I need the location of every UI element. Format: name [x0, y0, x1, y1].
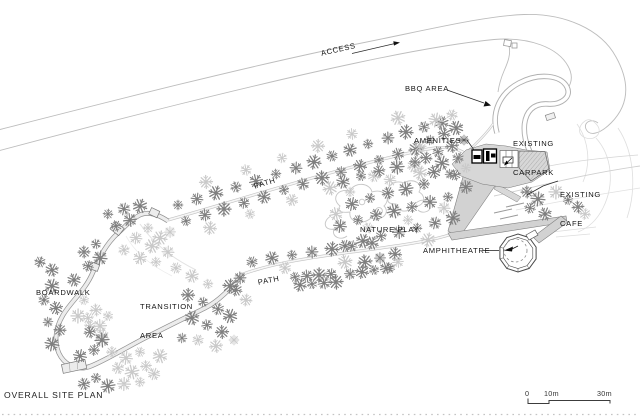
tree-icon — [215, 325, 229, 339]
tree-icon — [162, 224, 177, 239]
tree-icon — [245, 255, 260, 270]
label-existing-carpark-line2: CARPARK — [513, 168, 554, 178]
tree-icon — [169, 261, 184, 276]
tree-icon — [199, 175, 213, 189]
label-bbq-area: BBQ AREA — [405, 84, 449, 94]
label-nature-play: NATURE PLAY — [360, 225, 419, 235]
bbq-leader — [447, 90, 484, 103]
tree-icon — [445, 108, 459, 122]
bbq-arrow-icon — [484, 101, 492, 107]
tree-icon — [311, 139, 325, 153]
label-transition-line1: TRANSITION — [140, 302, 193, 312]
tree-icon — [173, 200, 183, 210]
access-arrow-icon — [393, 41, 400, 45]
tree-icon — [131, 249, 149, 267]
tree-icon — [160, 244, 177, 261]
tree-icon — [521, 186, 533, 198]
tree-icon — [421, 193, 439, 211]
tree-icon — [418, 178, 429, 189]
access-road-outer-line — [0, 14, 626, 133]
label-existing-carpark: EXISTING CARPARK — [513, 120, 554, 187]
tree-icon — [368, 207, 384, 223]
tree-icon — [442, 191, 453, 202]
tree-icon — [207, 184, 225, 202]
tree-icon — [364, 192, 377, 205]
label-boardwalk: BOARDWALK — [36, 288, 91, 298]
tree-icon — [292, 277, 308, 293]
tree-icon — [306, 154, 323, 171]
label-existing-cafe-line2: CAFE — [560, 219, 601, 229]
tree-icon — [387, 157, 407, 177]
label-existing-cafe-line1: EXISTING — [560, 190, 601, 200]
tree-icon — [390, 254, 405, 269]
tree-icon — [398, 124, 414, 140]
tree-icon — [151, 257, 162, 268]
tree-icon — [103, 209, 114, 220]
tree-icon — [345, 187, 355, 197]
tree-icon — [229, 180, 243, 194]
page-title: OVERALL SITE PLAN — [4, 390, 103, 400]
label-amphitheatre: AMPHITHEATRE — [423, 246, 490, 256]
tree-icon — [341, 141, 359, 159]
tree-icon — [89, 303, 102, 316]
label-transition-line2: AREA — [140, 331, 193, 341]
turning-head — [580, 120, 600, 139]
scale-label-start: 0 — [525, 389, 529, 398]
tree-icon — [403, 215, 414, 226]
tree-icon — [54, 324, 67, 337]
tree-icon — [89, 237, 103, 251]
tree-icon — [325, 149, 340, 164]
tree-icon — [426, 164, 442, 180]
tree-icon — [238, 162, 253, 177]
tree-icon — [189, 191, 206, 208]
tree-icon — [128, 230, 145, 247]
tree-icon — [380, 130, 397, 147]
scale-bar — [528, 399, 610, 404]
tree-icon — [110, 360, 126, 376]
scale-label-mid: 10m — [544, 389, 559, 398]
tree-icon — [436, 200, 453, 217]
tree-icon — [275, 151, 289, 165]
tree-icon — [203, 221, 218, 236]
tree-icon — [372, 250, 387, 265]
tree-icon — [427, 215, 444, 232]
label-transition-area: TRANSITION AREA — [140, 283, 193, 350]
access-arrow-line — [352, 44, 395, 54]
tree-icon — [90, 372, 103, 385]
tree-icon — [92, 330, 112, 350]
amenities-building — [472, 149, 497, 163]
tree-icon — [284, 192, 300, 208]
tree-icon — [288, 160, 305, 177]
tree-icon — [217, 202, 231, 216]
tree-icon — [117, 243, 131, 257]
tree-icon — [101, 309, 114, 322]
tree-icon — [221, 307, 240, 326]
tree-icon — [362, 138, 373, 149]
amphitheatre-ring — [500, 230, 538, 272]
tree-icon — [143, 223, 153, 233]
step-dashes — [494, 203, 524, 219]
pole-structure — [504, 40, 512, 47]
tree-icon — [239, 293, 253, 307]
tree-icon — [289, 271, 301, 283]
tree-icon — [44, 262, 60, 278]
site-plan-drawing — [0, 0, 640, 418]
tree-icon — [227, 333, 241, 347]
tree-icon — [343, 195, 361, 213]
tree-icon — [336, 253, 353, 270]
tree-icon — [88, 344, 100, 356]
site-plan-canvas: ACCESS BBQ AREA AMENITIES EXISTING CARPA… — [0, 0, 640, 418]
tree-icon — [41, 315, 55, 329]
tree-icon — [202, 278, 213, 289]
tree-icon — [122, 362, 141, 381]
tree-icon — [65, 271, 82, 288]
tree-icon — [106, 346, 117, 357]
tree-icon — [389, 109, 407, 127]
tree-icon — [447, 119, 466, 138]
tree-icon — [134, 376, 145, 387]
tree-icon — [321, 179, 338, 196]
label-amenities: AMENITIES — [414, 136, 461, 146]
tree-icon — [344, 126, 359, 141]
scale-label-end: 30m — [597, 389, 612, 398]
tree-icon — [78, 246, 90, 258]
tree-icon — [417, 120, 432, 135]
tree-icon — [209, 339, 224, 354]
road-spur — [498, 46, 510, 92]
label-existing-carpark-line1: EXISTING — [513, 139, 554, 149]
pole-structure-2 — [512, 43, 517, 48]
tree-icon — [33, 255, 47, 269]
tree-icon — [199, 317, 214, 332]
label-existing-cafe: EXISTING CAFE — [560, 171, 601, 238]
tree-icon — [243, 207, 256, 220]
tree-icon — [381, 186, 396, 201]
